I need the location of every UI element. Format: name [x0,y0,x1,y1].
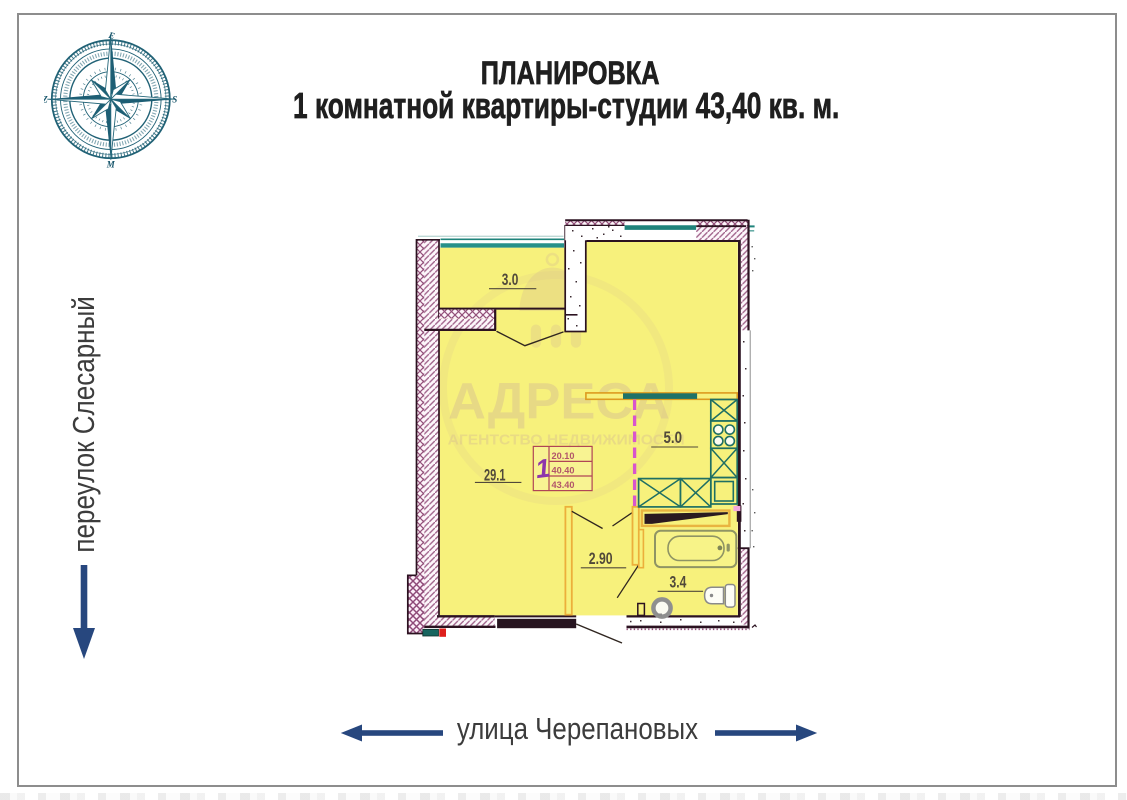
svg-text:АДРЕСА: АДРЕСА [448,373,670,430]
svg-text:43.40: 43.40 [552,480,575,490]
svg-text:S: S [172,95,177,105]
svg-text:3.0: 3.0 [502,271,519,289]
svg-text:Z: Z [44,95,48,105]
svg-text:29.1: 29.1 [484,466,506,484]
svg-text:20.10: 20.10 [552,451,575,461]
svg-text:5.0: 5.0 [664,429,683,447]
svg-text:2.90: 2.90 [589,550,613,568]
svg-text:3.4: 3.4 [670,574,687,592]
svg-text:M: M [106,160,116,168]
svg-text:40.40: 40.40 [552,466,575,476]
